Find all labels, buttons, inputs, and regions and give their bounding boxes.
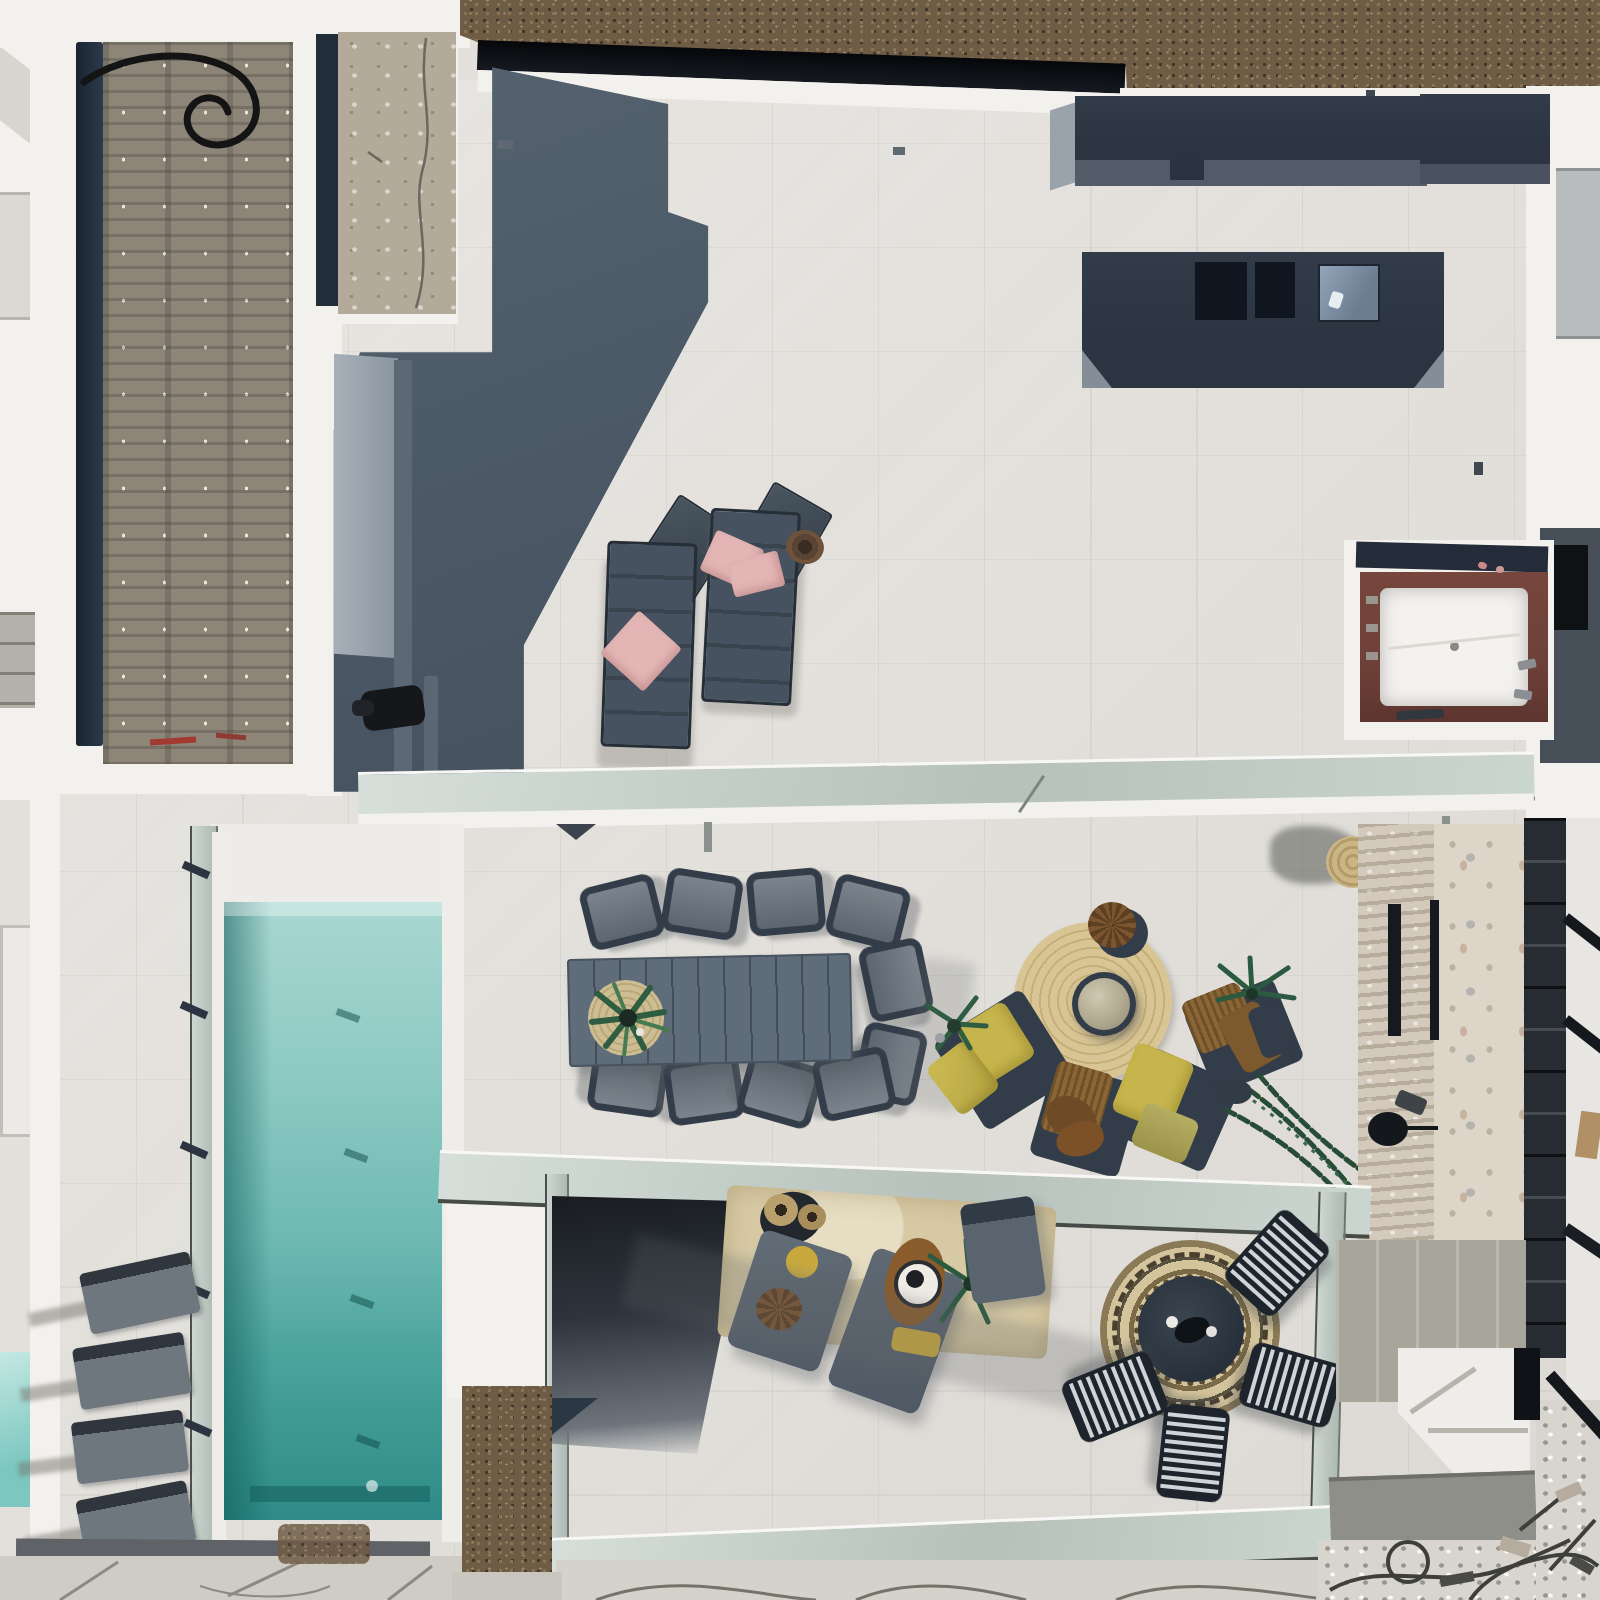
roof-box-side (1050, 101, 1078, 190)
dining-chair (745, 867, 826, 937)
leather-pouf (1088, 902, 1136, 948)
roof-vent (1474, 462, 1483, 475)
roof-opening (1195, 262, 1247, 320)
pool-step-shadow (250, 1486, 430, 1502)
wall-lamp-arm (1404, 1126, 1438, 1130)
coffee-table-top (1078, 978, 1130, 1030)
staircase (1524, 818, 1568, 1358)
pool-skimmer (366, 1480, 378, 1492)
wall-vent-slit (1430, 900, 1439, 1040)
neighbor-tiles (0, 192, 30, 320)
straw-hat (798, 1204, 826, 1230)
roof-opening (1255, 262, 1295, 318)
wall-vent-slit (1388, 904, 1401, 1036)
wall-lamp (1368, 1112, 1408, 1146)
concrete-cracks (338, 32, 456, 314)
mulch-ground (462, 1386, 552, 1576)
potted-plant (580, 968, 676, 1064)
cup (1206, 1326, 1217, 1337)
roof-box-small-face (1420, 164, 1550, 184)
railing-wedge (556, 824, 596, 840)
railing-post (704, 822, 712, 852)
patio-lounger (959, 1195, 1046, 1304)
pool-dark-edge (224, 902, 272, 1520)
potted-plant (1204, 952, 1300, 1022)
parapet (30, 792, 60, 1600)
roof-box-small (1420, 94, 1550, 168)
stone-wall-smooth (1434, 824, 1526, 1240)
roof-vent (893, 147, 905, 155)
potted-plant (918, 986, 994, 1058)
roof-box-long (1075, 96, 1427, 164)
right-edge-window (1552, 545, 1588, 630)
right-edge-box (1556, 168, 1600, 339)
hot-tub-fitting (1496, 566, 1504, 573)
debris-cables (1320, 1390, 1600, 1600)
wall-slat (424, 676, 438, 782)
pool-deck (210, 824, 464, 908)
slatted-chair (1155, 1403, 1230, 1503)
paver-corner (452, 1572, 562, 1600)
black-frame (1514, 1348, 1540, 1420)
skylight-window (1318, 264, 1380, 322)
dining-chair (659, 866, 744, 941)
roof-box-long-face (1075, 160, 1427, 186)
paver-joints (0, 1556, 462, 1600)
hot-tub-navy-top (1356, 541, 1549, 572)
paver-joint-curves (556, 1560, 1336, 1600)
aerial-villa-roof-scene (0, 0, 1600, 1600)
hot-tub-drain (1450, 642, 1459, 651)
roof-box-notch (1170, 158, 1204, 180)
hot-tub-vent-marks (1366, 596, 1378, 674)
mulch-debris (278, 1524, 370, 1564)
roof-hose-cable (70, 40, 280, 190)
pool-waterline-glare (224, 902, 442, 916)
roof-vent (497, 140, 513, 150)
cup (1166, 1316, 1178, 1328)
concrete-panel-navy-edge (316, 34, 338, 306)
straw-hat (764, 1194, 798, 1226)
grill-handle (352, 700, 374, 716)
slate-wall-top-edge (334, 354, 398, 658)
